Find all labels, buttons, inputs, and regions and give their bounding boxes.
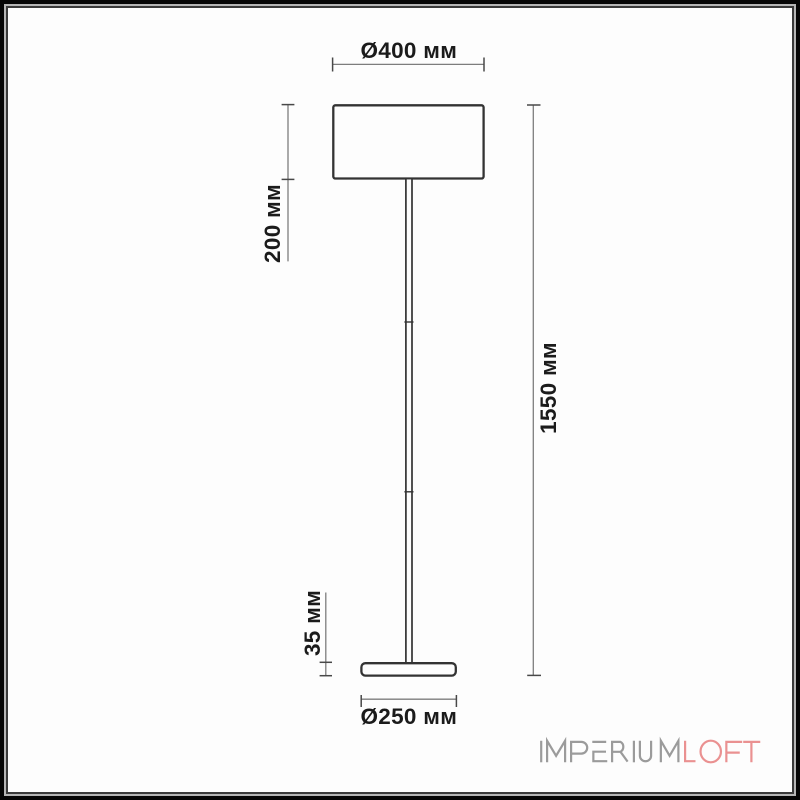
svg-text:Ø400 мм: Ø400 мм bbox=[360, 38, 457, 63]
svg-text:35 мм: 35 мм bbox=[300, 590, 325, 656]
svg-text:1550 мм: 1550 мм bbox=[536, 342, 561, 434]
svg-text:200 мм: 200 мм bbox=[260, 184, 285, 263]
svg-text:Ø250 мм: Ø250 мм bbox=[360, 704, 457, 729]
